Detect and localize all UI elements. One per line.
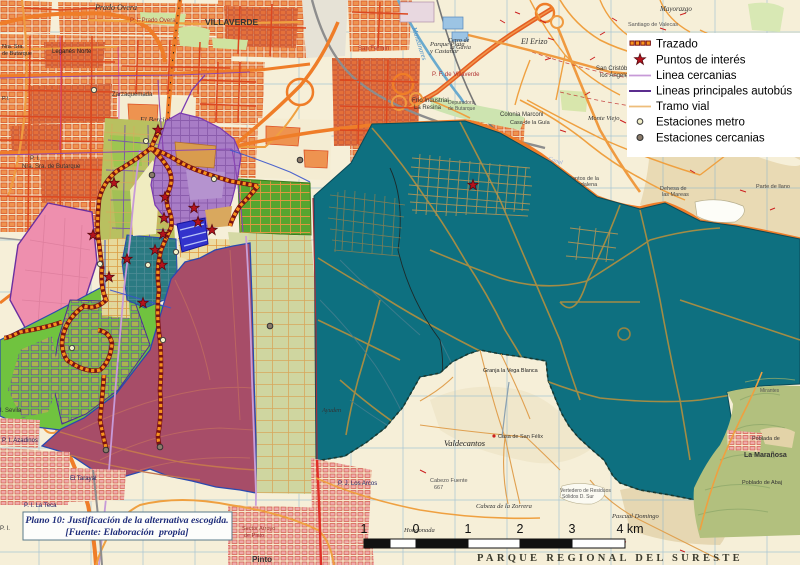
svg-text:las Mareas: las Mareas (662, 192, 689, 198)
svg-text:Mirantes: Mirantes (760, 388, 780, 394)
svg-text:Valdecantos: Valdecantos (444, 438, 486, 448)
svg-text:El Tarayal: El Tarayal (70, 476, 96, 482)
svg-text:Nra. Sra.: Nra. Sra. (2, 44, 24, 50)
svg-text:Puntos de interés: Puntos de interés (656, 55, 746, 67)
svg-text:PARQUE REGIONAL DEL SURESTE: PARQUE REGIONAL DEL SURESTE (477, 553, 743, 564)
svg-text:los Ángeles: los Ángeles (600, 72, 631, 79)
svg-text:San Fermín: San Fermín (358, 46, 389, 52)
svg-text:Poblado de Abaj: Poblado de Abaj (742, 480, 782, 486)
svg-text:P. I. Azadinos: P. I. Azadinos (2, 438, 38, 444)
svg-text:Tramo vial: Tramo vial (656, 101, 709, 113)
svg-text:3: 3 (569, 522, 576, 536)
svg-text:Nra. Sra. de Butarque: Nra. Sra. de Butarque (22, 164, 81, 170)
svg-text:Casa de la Guía: Casa de la Guía (510, 120, 551, 126)
svg-text:VILLAVERDE: VILLAVERDE (205, 17, 259, 27)
svg-text:Frío Industrial: Frío Industrial (412, 98, 449, 104)
svg-text:P. I.: P. I. (0, 526, 10, 532)
svg-text:I. Sevila: I. Sevila (0, 408, 22, 414)
svg-text:Granja la Vega Blanca: Granja la Vega Blanca (483, 368, 539, 374)
svg-text:Leganés Norte: Leganés Norte (52, 49, 92, 55)
svg-text:Sólidos D. Sur: Sólidos D. Sur (562, 494, 594, 500)
svg-text:P. I. La Teca: P. I. La Teca (24, 503, 57, 509)
svg-text:y Castañar: y Castañar (429, 48, 459, 55)
svg-text:de Butarque: de Butarque (448, 106, 475, 112)
svg-text:P. I.: P. I. (30, 156, 40, 162)
svg-text:El Erizo: El Erizo (520, 37, 547, 46)
svg-text:de Pinto: de Pinto (244, 533, 264, 539)
svg-text:Pascual Domingo: Pascual Domingo (611, 513, 660, 520)
svg-text:Prado Overa: Prado Overa (94, 3, 137, 12)
svg-text:Trazado: Trazado (656, 39, 698, 51)
svg-text:Sector Arroyo: Sector Arroyo (242, 526, 275, 532)
svg-text:1: 1 (361, 522, 368, 536)
svg-text:Mayorazgo: Mayorazgo (659, 5, 692, 13)
svg-text:Parte de llano: Parte de llano (756, 184, 790, 190)
svg-text:Colonia Marconi: Colonia Marconi (500, 112, 543, 118)
svg-text:Cabeza de la Zorrera: Cabeza de la Zorrera (476, 503, 532, 510)
svg-text:Zarzaquemada: Zarzaquemada (112, 92, 153, 98)
svg-text:P. F. de Villaverde: P. F. de Villaverde (432, 72, 480, 78)
svg-text:Linea cercanias: Linea cercanias (656, 70, 737, 82)
svg-text:La Resina: La Resina (414, 105, 442, 111)
svg-text:Cabezo Fuente: Cabezo Fuente (430, 478, 468, 484)
svg-text:Parque Plata: Parque Plata (429, 41, 465, 48)
svg-text:Estaciones metro: Estaciones metro (656, 117, 745, 129)
svg-text:4 km: 4 km (616, 522, 643, 536)
svg-text:2: 2 (517, 522, 524, 536)
svg-text:667: 667 (434, 485, 443, 491)
svg-text:de Butarque: de Butarque (2, 51, 32, 57)
svg-text:Lineas principales autobús: Lineas principales autobús (656, 86, 792, 98)
svg-text:Poblada de: Poblada de (752, 436, 780, 442)
svg-text:P. J. Los Arcos: P. J. Los Arcos (338, 481, 377, 487)
svg-text:Ayuden: Ayuden (321, 407, 341, 414)
svg-text:Santiago de Valecas: Santiago de Valecas (628, 22, 678, 28)
svg-text:P. I. Prado Overa: P. I. Prado Overa (130, 18, 176, 24)
svg-text:[Fuente: Elaboración propia]: [Fuente: Elaboración propia] (65, 527, 189, 538)
svg-text:Monte Viejo: Monte Viejo (587, 115, 620, 122)
svg-text:La Marañosa: La Marañosa (744, 452, 787, 459)
svg-text:Casa de San Félix: Casa de San Félix (498, 434, 543, 440)
svg-text:P.I.: P.I. (2, 96, 10, 102)
svg-text:0: 0 (413, 522, 420, 536)
svg-text:1: 1 (465, 522, 472, 536)
svg-text:Plano 10: Justificación de la: Plano 10: Justificación de la alternativ… (25, 515, 228, 526)
svg-text:Pinto: Pinto (252, 555, 272, 564)
svg-text:Estaciones cercanias: Estaciones cercanias (656, 133, 765, 145)
